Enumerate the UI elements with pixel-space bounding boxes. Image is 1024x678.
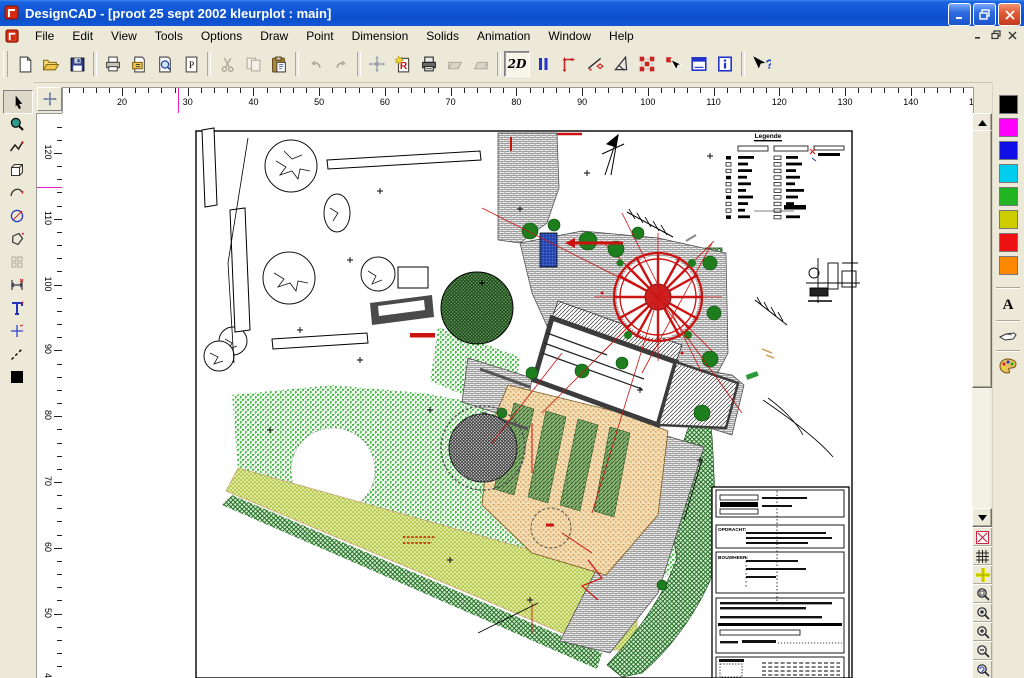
- ruler-tick: [661, 88, 662, 93]
- plotter-icon: [420, 56, 438, 73]
- move-cross-icon: [368, 55, 386, 73]
- document-icon: [5, 29, 20, 44]
- svg-text:BOUWHEER:: BOUWHEER:: [718, 555, 749, 561]
- ruler-tick: [438, 88, 439, 93]
- ruler-tick: [490, 88, 491, 93]
- symbol-r-icon: R: [394, 55, 412, 73]
- yellow-cross-icon: [976, 568, 990, 582]
- ruler-tick: [911, 88, 912, 96]
- ruler-label: 20: [117, 97, 127, 107]
- select-point-button[interactable]: [660, 51, 686, 77]
- scroll-down-button[interactable]: [972, 508, 992, 527]
- close-icon: [1008, 31, 1017, 40]
- polyline-icon: [9, 139, 25, 155]
- ruler-tick: [306, 88, 307, 93]
- ruler-tick: [267, 88, 268, 93]
- set-square-icon: [612, 55, 630, 73]
- menu-item-edit[interactable]: Edit: [63, 27, 102, 45]
- scissors-icon: [219, 56, 236, 73]
- ruler-tick: [54, 219, 62, 220]
- ruler-tick: [530, 88, 531, 93]
- menu-item-dimension[interactable]: Dimension: [343, 27, 418, 45]
- zoom-refresh-icon: [976, 663, 990, 677]
- sheet-next-button[interactable]: [468, 51, 494, 77]
- printer-icon: [104, 56, 122, 73]
- ruler-tick: [687, 88, 688, 93]
- ruler-label: 50: [314, 97, 324, 107]
- ruler-tick: [54, 350, 62, 351]
- ruler-label: 70: [446, 97, 456, 107]
- grid-icon: [976, 550, 989, 563]
- color-swatch[interactable]: [999, 95, 1018, 114]
- ruler-label: 90: [43, 340, 53, 358]
- ruler-tick: [464, 88, 465, 93]
- ruler-tick: [845, 88, 846, 96]
- toolbar-separator: [295, 52, 299, 76]
- ruler-label: 110: [43, 209, 53, 227]
- ruler-tick: [766, 88, 767, 93]
- hatch-tool-button[interactable]: [3, 251, 31, 273]
- ruler-tick: [359, 88, 360, 93]
- trim-tool-button[interactable]: [608, 51, 634, 77]
- ruler-tick: [832, 88, 833, 93]
- ruler-tick: [83, 88, 84, 93]
- origin-cross-icon: [43, 92, 57, 106]
- color-dialog-button[interactable]: [997, 355, 1019, 377]
- window-tile-button[interactable]: [686, 51, 712, 77]
- ruler-tick: [595, 88, 596, 93]
- palette-separator: [996, 287, 1020, 289]
- ruler-tick: [779, 88, 780, 96]
- tool-palette: [0, 82, 34, 678]
- help-arrow-icon: ?: [751, 55, 771, 73]
- zoom-extents-button[interactable]: [972, 603, 993, 623]
- restore-icon: [991, 30, 1001, 40]
- toolbar-handle[interactable]: [3, 51, 8, 77]
- title-bar: DesignCAD - [proot 25 sept 2002 kleurplo…: [0, 0, 1024, 26]
- menu-item-solids[interactable]: Solids: [417, 27, 468, 45]
- ruler-tick: [858, 88, 859, 93]
- site-plan: Legende OPDRACHT:: [62, 113, 972, 678]
- ruler-label: 40: [248, 97, 258, 107]
- ruler-tick: [714, 88, 715, 96]
- ruler-tick: [477, 88, 478, 93]
- ruler-label: 80: [511, 97, 521, 107]
- ruler-label: 100: [640, 97, 655, 107]
- view-toolbar: [972, 527, 991, 678]
- ruler-tick: [69, 88, 70, 93]
- new-file-icon: [17, 56, 34, 73]
- select-tool-button[interactable]: [3, 90, 33, 114]
- parallel-bars-icon: [535, 56, 551, 72]
- palette-separator: [996, 320, 1020, 322]
- ruler-label: 60: [380, 97, 390, 107]
- arrow-up-icon: [978, 120, 987, 126]
- redo-icon: [333, 56, 350, 73]
- ruler-tick: [54, 614, 62, 615]
- parallel-button[interactable]: [530, 51, 556, 77]
- ruler-tick: [806, 88, 807, 93]
- ruler-tick: [293, 88, 294, 93]
- context-help-button[interactable]: ?: [748, 51, 774, 77]
- menu-item-view[interactable]: View: [102, 27, 146, 45]
- menu-bar: File Edit View Tools Options Draw Point …: [0, 26, 1024, 47]
- ruler-tick: [727, 88, 728, 93]
- ruler-tick: [503, 88, 504, 93]
- pointing-hand-icon: [999, 329, 1017, 343]
- preview-icon: [156, 56, 174, 73]
- ruler-label: 90: [577, 97, 587, 107]
- zoom-window-icon: [976, 587, 990, 601]
- ruler-tick: [214, 88, 215, 93]
- window-icon: [690, 55, 708, 73]
- ruler-tick: [569, 88, 570, 93]
- svg-text:P: P: [188, 60, 193, 71]
- ruler-tick: [608, 88, 609, 93]
- gray-sheet-icon: [472, 56, 490, 73]
- restore-icon: [979, 9, 990, 20]
- magnifier-icon: [9, 116, 25, 132]
- color-swatch-icon: [9, 369, 25, 385]
- 2d-icon: 2D: [508, 57, 527, 71]
- copy-button[interactable]: [240, 51, 266, 77]
- ruler-tick: [648, 88, 649, 96]
- save-button[interactable]: [64, 51, 90, 77]
- color-swatch[interactable]: [999, 164, 1018, 183]
- arrow-down-icon: [978, 515, 987, 521]
- zoom-window-button[interactable]: [972, 584, 993, 604]
- app-icon: [4, 5, 20, 21]
- color-palette: A: [992, 82, 1024, 678]
- ruler-tick: [924, 88, 925, 93]
- ruler-tick: [398, 88, 399, 93]
- ruler-label: 150: [969, 97, 974, 107]
- undo-icon: [307, 56, 324, 73]
- ruler-tick: [54, 285, 62, 286]
- toolbar-separator: [741, 52, 745, 76]
- palette-separator: [996, 350, 1020, 352]
- cut-button[interactable]: [214, 51, 240, 77]
- erase-button[interactable]: [972, 527, 993, 547]
- ruler-label: 80: [43, 406, 53, 424]
- document-minimize-button[interactable]: [971, 28, 986, 42]
- ruler-tick: [516, 88, 517, 96]
- window-title: DesignCAD - [proot 25 sept 2002 kleurplo…: [25, 6, 331, 21]
- ruler-tick: [424, 88, 425, 93]
- menu-item-help[interactable]: Help: [600, 27, 643, 45]
- ruler-tick: [871, 88, 872, 93]
- ruler-tick: [54, 482, 62, 483]
- menu-item-draw[interactable]: Draw: [251, 27, 297, 45]
- move-point-button[interactable]: [364, 51, 390, 77]
- color-swatch[interactable]: [999, 256, 1018, 275]
- ruler-tick: [148, 88, 149, 93]
- zoom-previous-button[interactable]: [972, 660, 993, 678]
- close-button[interactable]: [998, 3, 1021, 26]
- redo-button[interactable]: [328, 51, 354, 77]
- ruler-label: 100: [43, 275, 53, 293]
- ortho-button[interactable]: [556, 51, 582, 77]
- point-cross-icon: [9, 323, 25, 339]
- ruler-tick: [898, 88, 899, 93]
- dimension-icon: [9, 277, 25, 293]
- horizontal-ruler: 2030405060708090100110120130140150: [62, 87, 974, 115]
- color-swatch[interactable]: [999, 233, 1018, 252]
- letter-a-icon: A: [1003, 297, 1014, 314]
- color-swatch[interactable]: [999, 210, 1018, 229]
- ruler-tick: [161, 88, 162, 93]
- undo-button[interactable]: [302, 51, 328, 77]
- current-color-button[interactable]: [3, 366, 31, 388]
- box-tool-button[interactable]: [3, 159, 31, 181]
- ruler-label: 40: [43, 669, 53, 678]
- zoom-out-icon: [976, 644, 990, 658]
- page-p-icon: P: [183, 56, 200, 73]
- gray-sheet-icon: [446, 56, 464, 73]
- toolbar-separator: [93, 52, 97, 76]
- ruler-tick: [582, 88, 583, 96]
- ruler-tick: [556, 88, 557, 93]
- ruler-tick: [385, 88, 386, 96]
- 2d-mode-button[interactable]: 2D: [504, 51, 530, 77]
- print-export-icon: [130, 56, 148, 73]
- ruler-label: 140: [903, 97, 918, 107]
- dimension-tool-button[interactable]: [3, 274, 31, 296]
- info-icon: [716, 55, 734, 73]
- arc-tool-button[interactable]: [3, 182, 31, 204]
- ruler-tick: [937, 88, 938, 93]
- ruler-label: 30: [183, 97, 193, 107]
- ruler-tick: [332, 88, 333, 93]
- svg-text:Legende: Legende: [755, 133, 782, 140]
- ruler-tick: [54, 548, 62, 549]
- arc-icon: [9, 185, 25, 201]
- open-folder-icon: [42, 56, 60, 73]
- toolbar-separator: [497, 52, 501, 76]
- ruler-tick: [753, 88, 754, 93]
- print-preview-button[interactable]: [152, 51, 178, 77]
- print-export-button[interactable]: [126, 51, 152, 77]
- ruler-tick: [674, 88, 675, 93]
- close-icon: [1005, 10, 1015, 20]
- paste-icon: [270, 56, 288, 73]
- ruler-tick: [54, 416, 62, 417]
- ruler-tick: [253, 88, 254, 96]
- insert-symbol-button[interactable]: R: [390, 51, 416, 77]
- ruler-tick: [280, 88, 281, 93]
- line-point-button[interactable]: [582, 51, 608, 77]
- polygon-icon: [9, 231, 25, 247]
- ruler-tick: [451, 88, 452, 96]
- save-floppy-icon: [69, 56, 86, 73]
- ruler-tick: [135, 88, 136, 93]
- ruler-tick: [819, 88, 820, 93]
- color-swatch[interactable]: [999, 187, 1018, 206]
- menu-item-tools[interactable]: Tools: [146, 27, 192, 45]
- ruler-tick: [240, 88, 241, 93]
- menu-item-options[interactable]: Options: [192, 27, 251, 45]
- svg-text:?: ?: [765, 56, 771, 71]
- ruler-tick: [740, 88, 741, 93]
- handles-icon: [638, 55, 656, 73]
- title-block: OPDRACHT: BOUWHEER:: [712, 487, 849, 678]
- ruler-tick: [411, 88, 412, 93]
- copy-icon: [245, 56, 262, 73]
- paste-button[interactable]: [266, 51, 292, 77]
- ruler-label: 130: [838, 97, 853, 107]
- ruler-tick: [963, 88, 964, 93]
- minimize-icon: [955, 10, 965, 20]
- painter-palette-icon: [999, 358, 1017, 374]
- hatch-icon: [9, 254, 25, 270]
- text-tool-button[interactable]: [3, 297, 31, 319]
- color-swatch[interactable]: [999, 118, 1018, 137]
- ruler-label: 70: [43, 472, 53, 490]
- point-tool-button[interactable]: [3, 320, 31, 342]
- menu-item-point[interactable]: Point: [297, 27, 342, 45]
- ruler-tick: [227, 88, 228, 93]
- ruler-tick: [175, 88, 176, 93]
- color-swatch[interactable]: [999, 141, 1018, 160]
- scrollbar-thumb[interactable]: [972, 130, 992, 388]
- circle-tool-button[interactable]: [3, 205, 31, 227]
- zoom-in-icon: [976, 625, 990, 639]
- document-restore-button[interactable]: [988, 28, 1003, 42]
- text-t-icon: [9, 300, 25, 316]
- zoom-box-icon: [976, 606, 990, 620]
- minimize-button[interactable]: [948, 3, 971, 26]
- ruler-label: 120: [772, 97, 787, 107]
- line-point-icon: [586, 55, 604, 73]
- cube-icon: [9, 162, 25, 178]
- print-button[interactable]: [100, 51, 126, 77]
- ruler-tick: [884, 88, 885, 93]
- polygon-tool-button[interactable]: [3, 228, 31, 250]
- pointer-icon: [11, 94, 26, 110]
- text-attributes-button[interactable]: A: [997, 294, 1019, 316]
- toolbar-separator: [357, 52, 361, 76]
- ruler-tick: [201, 88, 202, 93]
- menu-item-file[interactable]: File: [26, 27, 63, 45]
- ortho-arrow-icon: [560, 55, 578, 73]
- zoom-out-button[interactable]: [972, 641, 993, 661]
- ruler-tick: [122, 88, 123, 96]
- zoom-tool-button[interactable]: [3, 113, 31, 135]
- select-point-icon: [664, 55, 682, 73]
- selection-handles-button[interactable]: [634, 51, 660, 77]
- ruler-label: 120: [43, 143, 53, 161]
- ruler-tick: [792, 88, 793, 93]
- drawing-canvas[interactable]: Legende OPDRACHT:: [62, 113, 972, 678]
- dashed-line-icon: [9, 346, 25, 362]
- ruler-tick: [950, 88, 951, 93]
- main-toolbar: P R: [0, 46, 1024, 83]
- ruler-tick: [700, 88, 701, 93]
- new-button[interactable]: [12, 51, 38, 77]
- ruler-tick: [54, 153, 62, 154]
- grid-toggle-button[interactable]: [972, 546, 993, 566]
- red-x-box-icon: [976, 531, 989, 544]
- sheet-prev-button[interactable]: [442, 51, 468, 77]
- big-cross-button[interactable]: [972, 565, 993, 585]
- minimize-icon: [974, 31, 983, 40]
- ruler-tick: [319, 88, 320, 96]
- ruler-tick: [345, 88, 346, 93]
- cursor-marker: [37, 187, 62, 188]
- ruler-tick: [372, 88, 373, 93]
- ruler-tick: [622, 88, 623, 93]
- toolbar-separator: [207, 52, 211, 76]
- circle-icon: [9, 208, 25, 224]
- menu-item-animation[interactable]: Animation: [468, 27, 539, 45]
- designcad-window: { "window": { "title": "DesignCAD - [pro…: [0, 0, 1024, 678]
- hand-select-button[interactable]: [997, 325, 1019, 347]
- document-close-button[interactable]: [1005, 28, 1020, 42]
- page-setup-button[interactable]: P: [178, 51, 204, 77]
- ruler-tick: [543, 88, 544, 93]
- ruler-tick: [188, 88, 189, 96]
- restore-button[interactable]: [973, 3, 996, 26]
- vertical-ruler: 120110100908070605040: [36, 113, 63, 678]
- cursor-marker: [178, 88, 179, 114]
- info-button[interactable]: [712, 51, 738, 77]
- svg-text:OPDRACHT:: OPDRACHT:: [718, 527, 747, 533]
- polyline-tool-button[interactable]: [3, 136, 31, 158]
- ruler-tick: [635, 88, 636, 93]
- ruler-origin-button[interactable]: [37, 87, 62, 111]
- ruler-tick: [96, 88, 97, 93]
- line-tool-button[interactable]: [3, 343, 31, 365]
- open-button[interactable]: [38, 51, 64, 77]
- ruler-tick: [109, 88, 110, 93]
- ruler-label: 50: [43, 604, 53, 622]
- plot-button[interactable]: [416, 51, 442, 77]
- ruler-label: 110: [706, 97, 720, 107]
- zoom-in-button[interactable]: [972, 622, 993, 642]
- ruler-label: 60: [43, 538, 53, 556]
- menu-item-window[interactable]: Window: [539, 27, 600, 45]
